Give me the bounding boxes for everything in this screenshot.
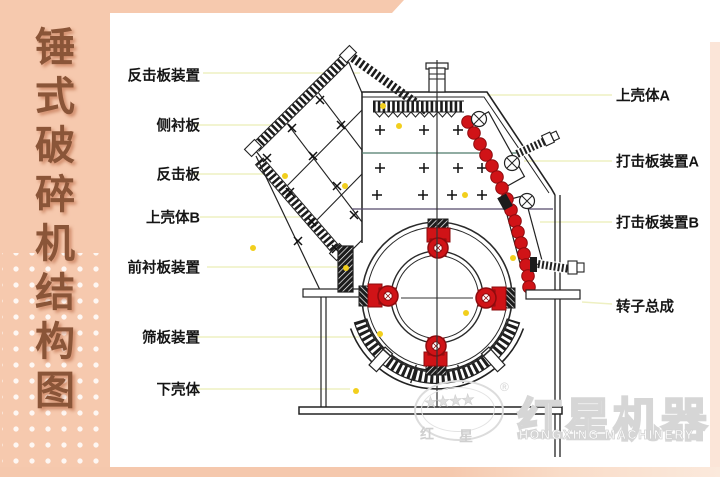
brand-char-left: 红: [420, 424, 434, 444]
page: 锤式破碎机结构图: [0, 0, 720, 477]
label-rotor-assembly: 转子总成: [616, 296, 674, 317]
label-lower-casing: 下壳体: [100, 379, 200, 400]
tension-screw-a: [517, 131, 559, 154]
label-upper-casing-b: 上壳体B: [100, 207, 200, 228]
label-front-liner-assembly: 前衬板装置: [100, 257, 200, 278]
feed-chute: [245, 46, 427, 290]
label-screen-plate-assembly: 筛板装置: [100, 327, 200, 348]
brand-char-right: 星: [459, 426, 473, 446]
label-impact-plate: 反击板: [100, 164, 200, 185]
brand-name-en: HONGXING MACHINERY: [519, 428, 695, 442]
label-side-liner: 侧衬板: [100, 115, 200, 136]
label-striking-plate-assembly-a: 打击板装置A: [616, 151, 699, 172]
label-impact-plate-assembly: 反击板装置: [100, 65, 200, 86]
brand-stars-icon: ★★★★: [423, 390, 474, 411]
label-upper-casing-a: 上壳体A: [616, 85, 670, 106]
label-striking-plate-assembly-b: 打击板装置B: [616, 212, 699, 233]
registered-trademark-icon: ®: [500, 380, 509, 394]
striking-plate-assemblies: [462, 112, 584, 294]
